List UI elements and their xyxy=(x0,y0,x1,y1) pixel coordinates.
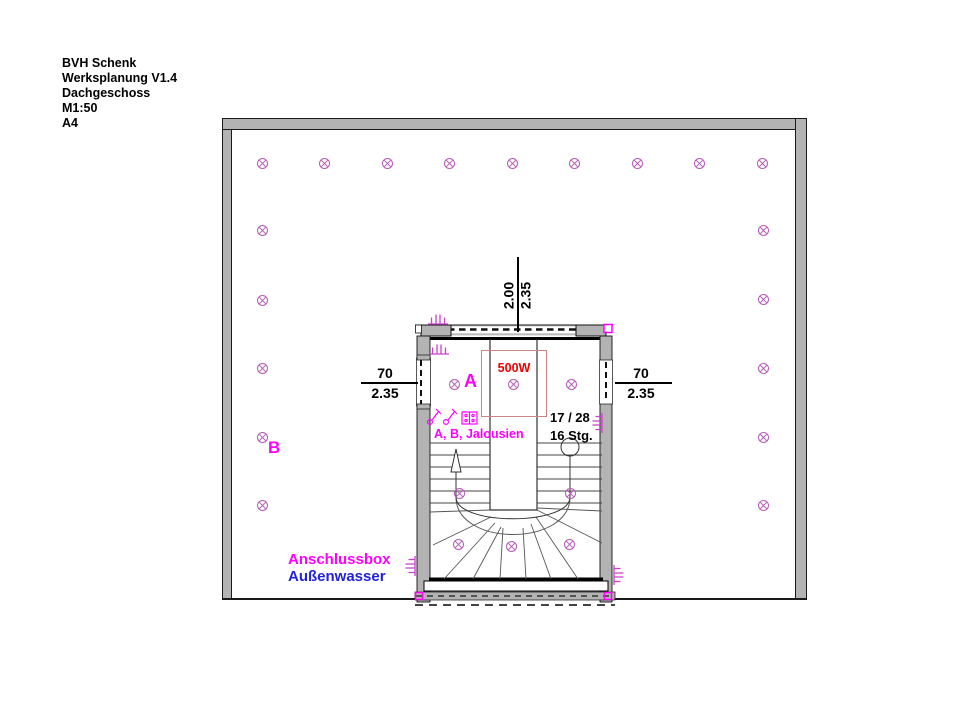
ceiling-light-symbol xyxy=(758,500,769,511)
ceiling-light-symbol xyxy=(257,500,268,511)
ceiling-light-symbol xyxy=(257,363,268,374)
ceiling-light-symbol xyxy=(453,539,464,550)
ceiling-light-symbol xyxy=(757,158,768,169)
stair-walking-line xyxy=(456,456,570,519)
ceiling-light-symbol xyxy=(758,294,769,305)
dim-line-left xyxy=(361,382,418,384)
ceiling-light-symbol xyxy=(319,158,330,169)
anschlussbox-label: Anschlussbox xyxy=(288,551,391,568)
ceiling-light-symbol xyxy=(454,488,465,499)
ceiling-light-symbol xyxy=(565,488,576,499)
ceiling-light-symbol xyxy=(564,539,575,550)
dim-line-right xyxy=(615,382,672,384)
floor-plan-canvas: BVH Schenk Werksplanung V1.4 Dachgeschos… xyxy=(0,0,960,720)
attic-wall-left xyxy=(222,118,232,600)
zone-a-label: A xyxy=(464,371,477,392)
ceiling-light-symbol xyxy=(758,225,769,236)
dim-right-value-2: 2.35 xyxy=(615,385,667,401)
dim-left-value-2: 2.35 xyxy=(360,385,410,401)
ceiling-light-symbol xyxy=(569,158,580,169)
ceiling-light-symbol xyxy=(566,379,577,390)
stair-steps-label: 16 Stg. xyxy=(550,428,593,443)
electrical-connection-symbol xyxy=(428,342,450,354)
stair-direction-arrow-icon xyxy=(451,449,461,472)
electrical-connection-symbol xyxy=(590,412,602,434)
ceiling-light-symbol xyxy=(382,158,393,169)
plan-area: 500W 2.00 2.35 70 2.35 70 2.35 A B A, B,… xyxy=(0,0,960,720)
corner-marker-top-right xyxy=(604,325,612,333)
jalousie-switch-icons xyxy=(424,404,482,428)
jalousien-label: A, B, Jalousien xyxy=(434,427,524,441)
attic-wall-top xyxy=(222,118,807,130)
dim-left-value-1: 70 xyxy=(360,365,410,381)
electrical-connection-symbol xyxy=(427,312,449,324)
ceiling-light-symbol xyxy=(257,432,268,443)
ceiling-light-symbol xyxy=(758,363,769,374)
ceiling-light-symbol xyxy=(508,379,519,390)
zone-b-label: B xyxy=(268,438,280,458)
dim-right-value-1: 70 xyxy=(615,365,667,381)
electrical-connection-symbol xyxy=(403,555,415,577)
ceiling-light-symbol xyxy=(632,158,643,169)
ceiling-light-symbol xyxy=(444,158,455,169)
ceiling-light-symbol xyxy=(257,225,268,236)
attic-wall-right xyxy=(795,118,807,600)
ceiling-light-symbol xyxy=(758,432,769,443)
ceiling-light-symbol xyxy=(257,158,268,169)
ceiling-light-symbol xyxy=(694,158,705,169)
ceiling-light-symbol xyxy=(506,541,517,552)
electrical-connection-symbol xyxy=(614,564,626,586)
stair-ratio-label: 17 / 28 xyxy=(550,410,590,425)
dim-top-value-1: 2.00 xyxy=(501,271,516,321)
load-label: 500W xyxy=(482,361,546,375)
aussenwasser-label: Außenwasser xyxy=(288,568,386,585)
dim-top-value-2: 2.35 xyxy=(518,271,533,321)
ceiling-light-symbol xyxy=(507,158,518,169)
ceiling-light-symbol xyxy=(449,379,460,390)
ceiling-light-symbol xyxy=(257,295,268,306)
